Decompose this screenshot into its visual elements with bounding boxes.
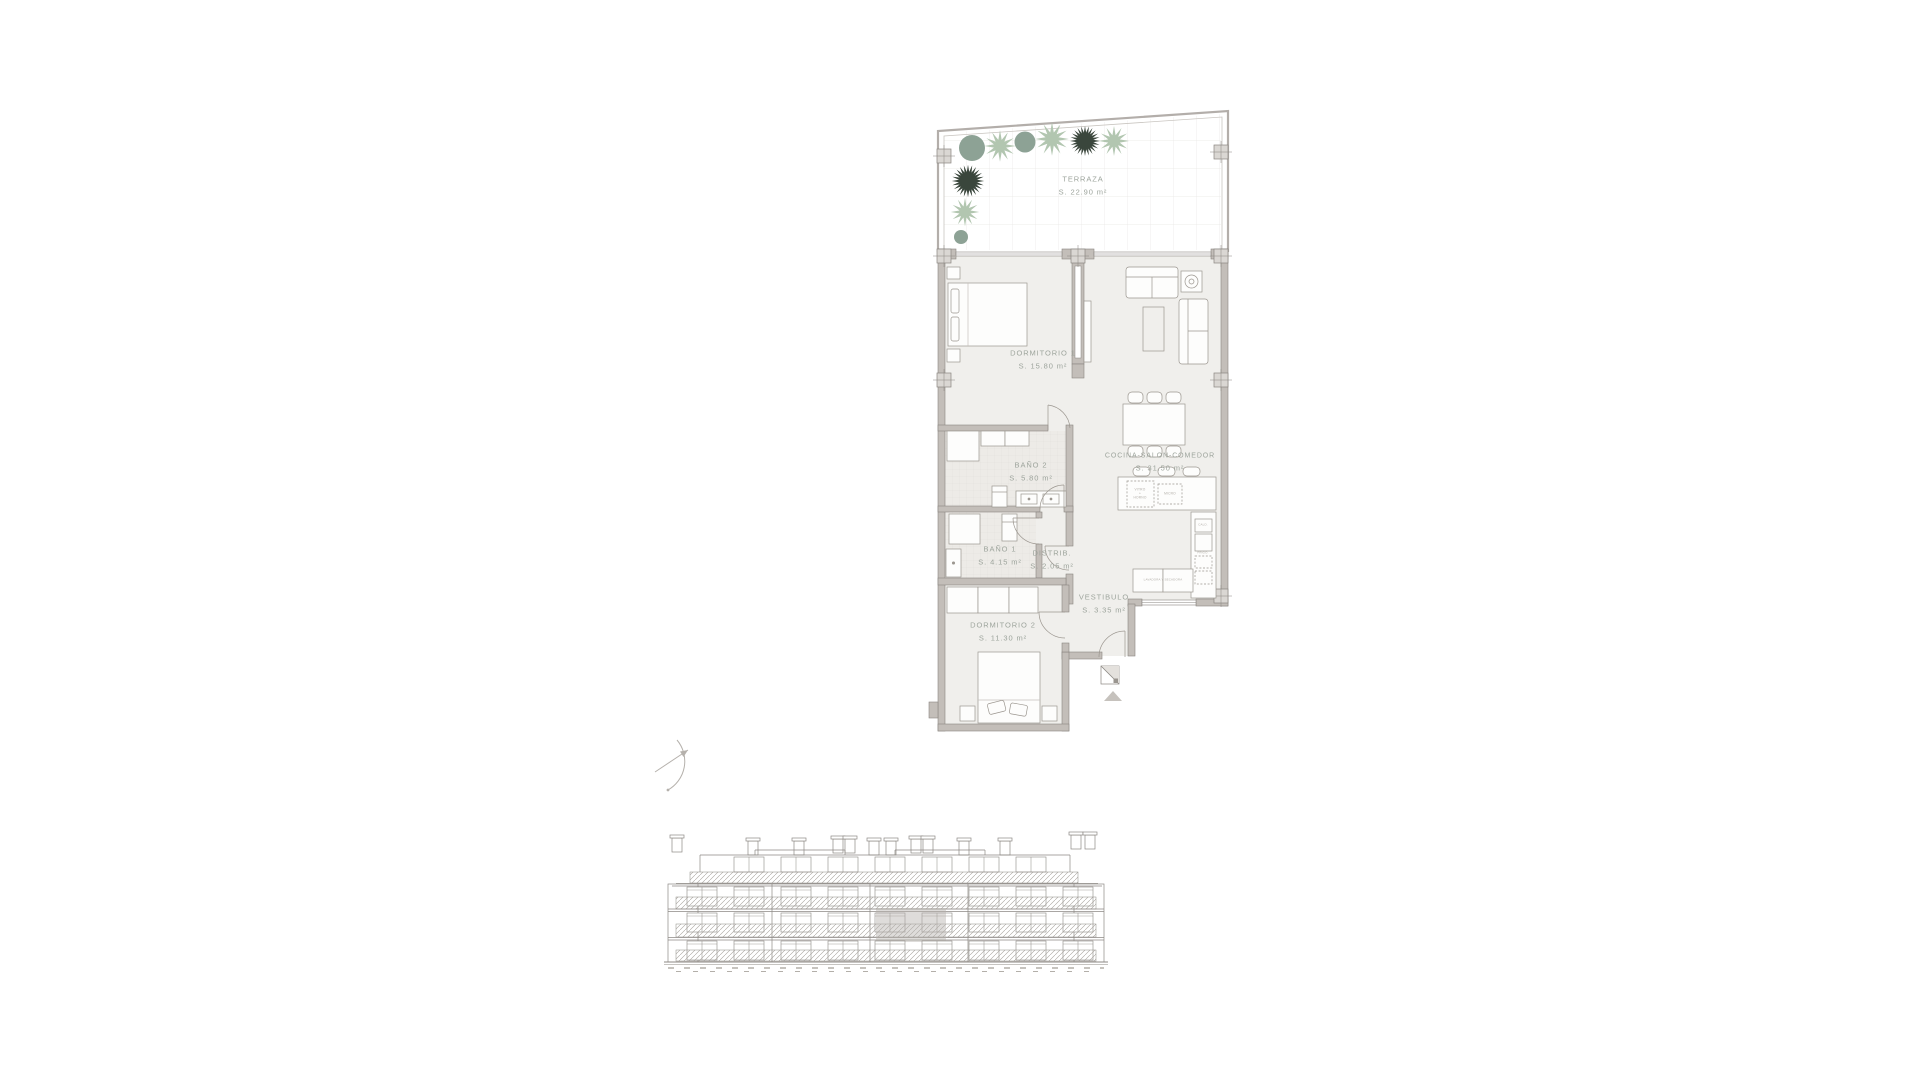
floor-upper bbox=[668, 887, 1104, 912]
room-label-bano1: BAÑO 1 S. 4.15 m² bbox=[978, 543, 1022, 569]
wardrobe-icon bbox=[947, 587, 978, 613]
shrub-icon bbox=[1015, 132, 1036, 153]
bed-icon bbox=[978, 652, 1040, 723]
nightstand-icon bbox=[1042, 706, 1057, 721]
balcony-railing bbox=[676, 897, 1096, 909]
ground-line bbox=[664, 962, 1108, 972]
shower-icon bbox=[949, 514, 980, 544]
balcony-railing bbox=[690, 872, 1078, 883]
nightstand-icon bbox=[947, 349, 960, 362]
sofa-icon bbox=[1126, 267, 1178, 298]
wardrobe-icon bbox=[981, 431, 1005, 446]
building-elevation bbox=[664, 832, 1108, 972]
appliance-label-micro: MICRO bbox=[1164, 492, 1176, 496]
drawing-sheet: TERRAZA S. 22.90 m² DORMITORIO 1 S. 15.8… bbox=[0, 0, 1920, 1080]
vanity-sinks-icon bbox=[1016, 491, 1066, 507]
attic-level bbox=[672, 850, 1102, 886]
room-label-terraza: TERRAZA S. 22.90 m² bbox=[1059, 173, 1108, 199]
north-arrow-icon bbox=[655, 740, 688, 791]
sofa-icon bbox=[1179, 299, 1208, 364]
closet-label: LAVADORA Y SECADORA bbox=[1144, 578, 1183, 582]
shower-icon bbox=[947, 431, 979, 461]
dining-table-icon bbox=[1123, 392, 1185, 457]
wardrobe-icon bbox=[978, 587, 1009, 613]
appliance-label-cald: CALD. bbox=[1198, 523, 1208, 527]
appliance-label-frigo: FRIGO. bbox=[1197, 551, 1208, 555]
direction-triangle-icon bbox=[1104, 691, 1122, 701]
toilet-icon bbox=[992, 486, 1007, 507]
highlighted-unit bbox=[876, 908, 946, 942]
nightstand-icon bbox=[960, 706, 975, 721]
room-label-dormitorio1: DORMITORIO 1 S. 15.80 m² bbox=[1010, 347, 1076, 373]
appliance-label-vitro-horno: VITRO + HORNO bbox=[1133, 488, 1146, 500]
wardrobe-icon bbox=[1009, 587, 1038, 613]
room-label-bano2: BAÑO 2 S. 5.80 m² bbox=[1009, 459, 1053, 485]
bed-icon bbox=[948, 283, 1027, 346]
room-label-vestibulo: VESTIBULO S. 3.35 m² bbox=[1079, 591, 1129, 617]
shrub-icon bbox=[959, 135, 985, 161]
floor-ground bbox=[676, 941, 1096, 961]
room-label-dormitorio2: DORMITORIO 2 S. 11.30 m² bbox=[970, 619, 1036, 645]
entrance-marker-icon bbox=[1101, 666, 1119, 684]
room-label-distrib: DISTRIB. S. 2.05 m² bbox=[1030, 547, 1074, 573]
chimneys bbox=[670, 832, 1097, 855]
architectural-drawing bbox=[0, 0, 1920, 1080]
wardrobe-icon bbox=[1005, 431, 1029, 446]
balcony-railing bbox=[676, 950, 1096, 961]
sink-icon bbox=[946, 549, 961, 577]
shrub-icon bbox=[954, 230, 968, 244]
room-label-cocina-salon-comedor: COCINA-SALON-COMEDOR S. 31.50 m² bbox=[1105, 451, 1215, 476]
sliding-door-leaf bbox=[1075, 266, 1081, 358]
tv-unit-icon bbox=[1084, 301, 1091, 362]
armchair-icon bbox=[1181, 271, 1202, 292]
nightstand-icon bbox=[947, 267, 960, 279]
